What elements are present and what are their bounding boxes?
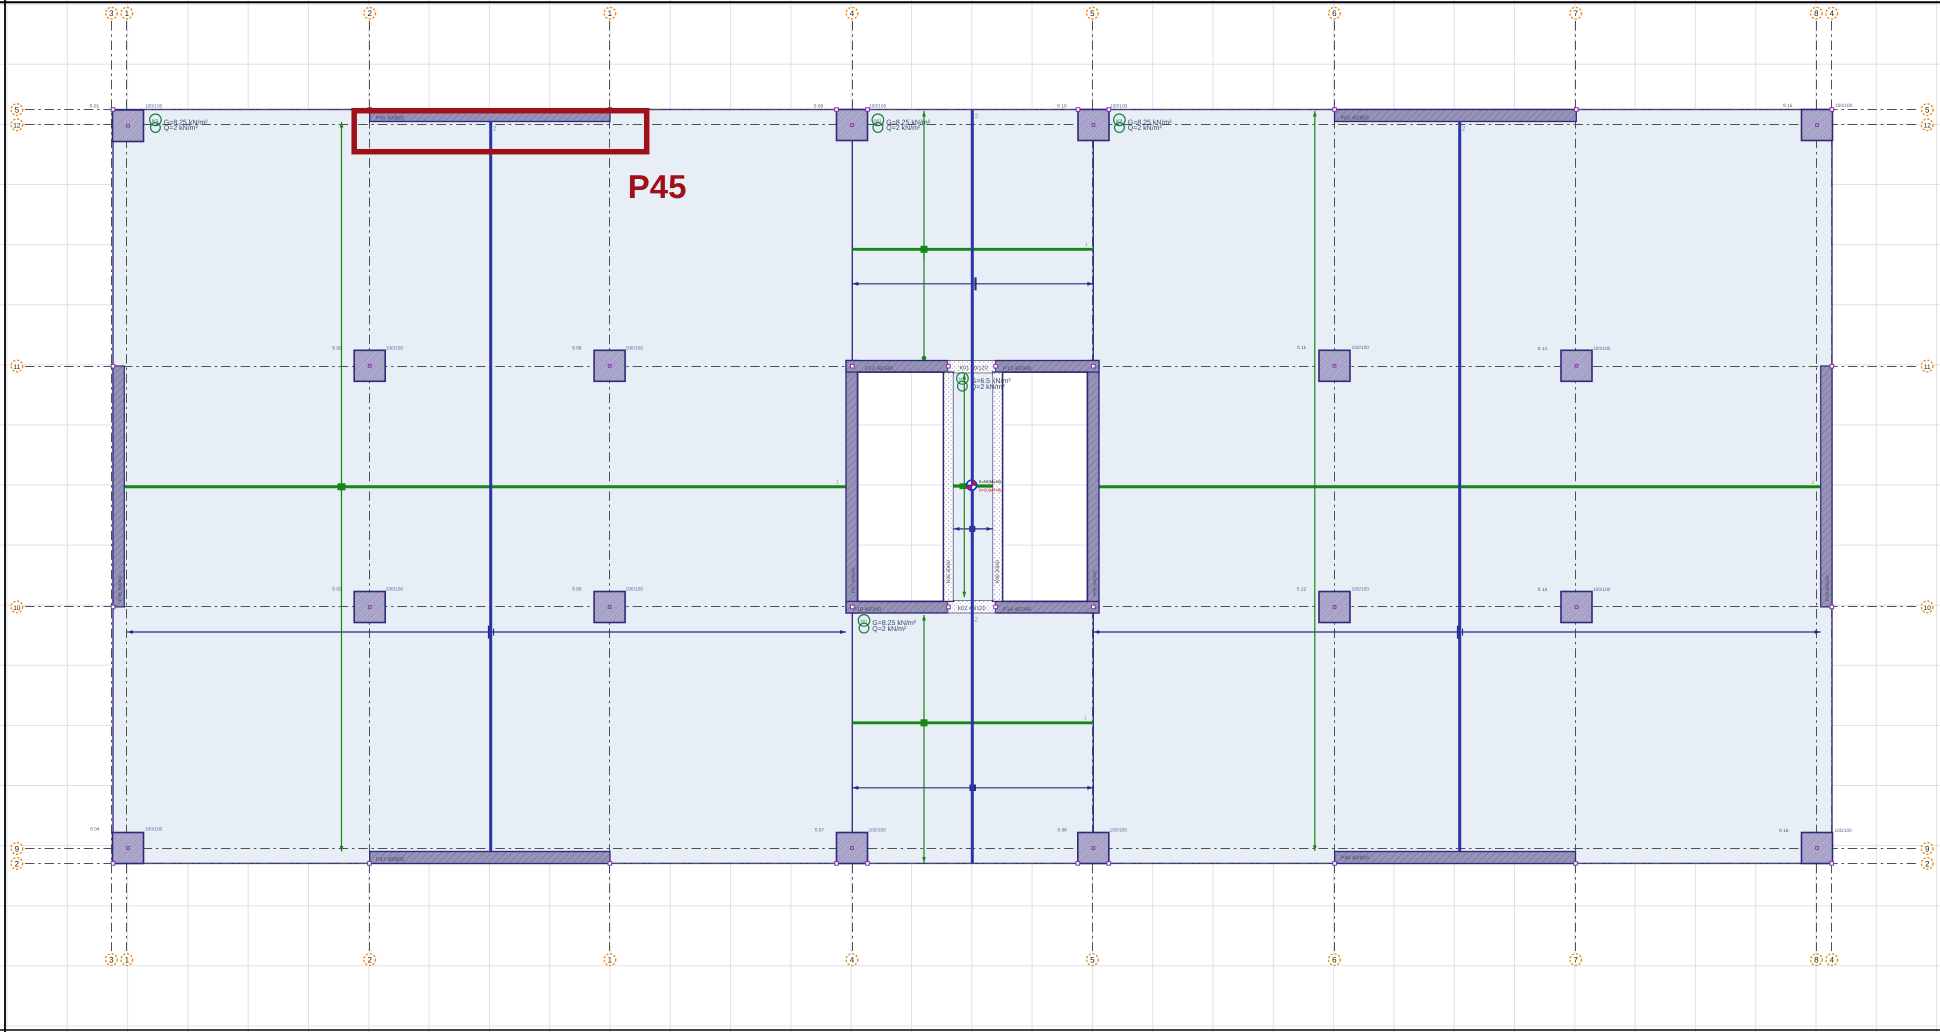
svg-text:P47 40/800: P47 40/800 (376, 857, 404, 863)
svg-text:S 05: S 05 (572, 587, 582, 592)
svg-text:1: 1 (1084, 716, 1087, 722)
svg-text:1: 1 (1085, 242, 1088, 248)
svg-text:6: 6 (1332, 956, 1337, 965)
svg-text:P46 800/40: P46 800/40 (118, 575, 124, 601)
svg-text:P14 40/340: P14 40/340 (1003, 607, 1031, 613)
svg-text:12: 12 (1924, 123, 1932, 130)
svg-text:100/100: 100/100 (145, 827, 163, 833)
svg-text:S 06: S 06 (572, 345, 582, 350)
svg-text:S 11: S 11 (1297, 345, 1307, 350)
svg-text:100/100: 100/100 (1110, 827, 1128, 833)
svg-text:10: 10 (13, 605, 21, 612)
svg-text:4: 4 (850, 956, 855, 965)
svg-text:100/100: 100/100 (1593, 346, 1611, 352)
svg-text:S 07: S 07 (815, 827, 825, 832)
svg-text:2: 2 (1925, 859, 1930, 868)
svg-text:b01: b01 (1116, 118, 1124, 123)
svg-text:7: 7 (1573, 9, 1578, 18)
svg-text:8: 8 (1814, 9, 1819, 18)
svg-text:1: 1 (608, 9, 613, 18)
svg-text:100/100: 100/100 (1835, 103, 1853, 109)
svg-text:P10 40/340: P10 40/340 (853, 607, 881, 613)
svg-text:S 15: S 15 (1783, 103, 1793, 108)
svg-text:12: 12 (13, 123, 21, 130)
svg-text:100/100: 100/100 (1352, 345, 1370, 351)
svg-text:100/100: 100/100 (386, 587, 404, 593)
svg-text:S 14: S 14 (1538, 346, 1548, 351)
svg-text:3: 3 (109, 956, 114, 965)
svg-text:K=50(M=48): K=50(M=48) (979, 479, 1002, 484)
svg-text:P07 840/40: P07 840/40 (851, 567, 857, 593)
svg-text:2: 2 (975, 113, 979, 120)
svg-text:P13 40/340: P13 40/340 (1003, 366, 1031, 372)
svg-text:Q=2 kN/m²: Q=2 kN/m² (164, 124, 199, 132)
svg-text:Q=2 kN/m²: Q=2 kN/m² (971, 383, 1006, 391)
svg-text:Q=2 kN/m²: Q=2 kN/m² (1128, 124, 1163, 132)
svg-text:1: 1 (608, 956, 613, 965)
svg-text:100/100: 100/100 (1593, 587, 1611, 593)
svg-text:100/100: 100/100 (626, 345, 644, 351)
svg-text:100/100: 100/100 (869, 827, 887, 833)
svg-text:5: 5 (1925, 106, 1930, 115)
svg-text:3: 3 (109, 9, 114, 18)
svg-text:R=50(M=48): R=50(M=48) (979, 488, 1002, 493)
svg-text:2: 2 (974, 617, 978, 624)
svg-text:1: 1 (125, 9, 130, 18)
svg-text:b01: b01 (874, 118, 882, 123)
svg-text:4: 4 (1830, 956, 1835, 965)
svg-text:S 16: S 16 (1779, 828, 1789, 833)
svg-text:S 01: S 01 (90, 103, 100, 108)
svg-text:P45: P45 (628, 168, 687, 205)
svg-text:S 04: S 04 (90, 827, 100, 832)
svg-text:100/100: 100/100 (145, 103, 163, 109)
svg-text:5: 5 (15, 106, 20, 115)
svg-text:P49 800/40: P49 800/40 (1825, 575, 1831, 601)
svg-text:K06 30/60: K06 30/60 (995, 560, 1001, 583)
svg-text:1: 1 (125, 956, 130, 965)
svg-text:9: 9 (15, 844, 20, 853)
svg-text:S 10: S 10 (1057, 103, 1067, 108)
svg-text:6: 6 (1332, 9, 1337, 18)
svg-text:100/100: 100/100 (1352, 586, 1370, 592)
svg-text:S 08: S 08 (1057, 827, 1067, 832)
svg-text:P50 40/800: P50 40/800 (1341, 115, 1369, 121)
svg-text:8: 8 (1814, 956, 1819, 965)
svg-text:10: 10 (1924, 605, 1932, 612)
svg-text:4: 4 (850, 9, 855, 18)
svg-text:S 02: S 02 (332, 345, 342, 350)
svg-text:5: 5 (1090, 9, 1095, 18)
svg-text:2: 2 (1462, 126, 1466, 133)
svg-text:11: 11 (14, 364, 21, 371)
svg-text:1: 1 (1812, 480, 1815, 486)
svg-text:P08 840/40: P08 840/40 (1093, 570, 1099, 596)
svg-text:2: 2 (367, 956, 372, 965)
svg-text:S 03: S 03 (332, 587, 342, 592)
svg-text:7: 7 (1573, 956, 1578, 965)
svg-text:S 12: S 12 (1297, 586, 1307, 591)
svg-text:P45 40/800: P45 40/800 (376, 115, 404, 121)
svg-text:1: 1 (836, 480, 839, 486)
svg-text:11: 11 (1924, 364, 1931, 371)
svg-text:9: 9 (1925, 844, 1930, 853)
svg-text:2: 2 (15, 859, 20, 868)
svg-text:100/100: 100/100 (626, 587, 644, 593)
svg-text:S 09: S 09 (814, 104, 824, 109)
svg-text:K05 30/60: K05 30/60 (946, 560, 952, 583)
svg-text:2: 2 (367, 9, 372, 18)
svg-text:100/100: 100/100 (869, 104, 887, 110)
svg-text:100/100: 100/100 (1835, 828, 1853, 834)
svg-text:4: 4 (1830, 9, 1835, 18)
svg-text:b01: b01 (152, 118, 160, 123)
svg-text:P12 40/340: P12 40/340 (865, 366, 893, 372)
svg-text:100/100: 100/100 (1110, 103, 1128, 109)
svg-text:b01: b01 (861, 619, 869, 624)
svg-text:P48 40/800: P48 40/800 (1341, 855, 1369, 861)
svg-text:Q=2 kN/m²: Q=2 kN/m² (886, 124, 921, 132)
svg-text:Q=2 kN/m²: Q=2 kN/m² (872, 625, 907, 633)
svg-text:5: 5 (1090, 956, 1095, 965)
svg-text:S 13: S 13 (1538, 587, 1548, 592)
svg-text:100/100: 100/100 (386, 345, 404, 351)
svg-text:2: 2 (493, 126, 497, 133)
